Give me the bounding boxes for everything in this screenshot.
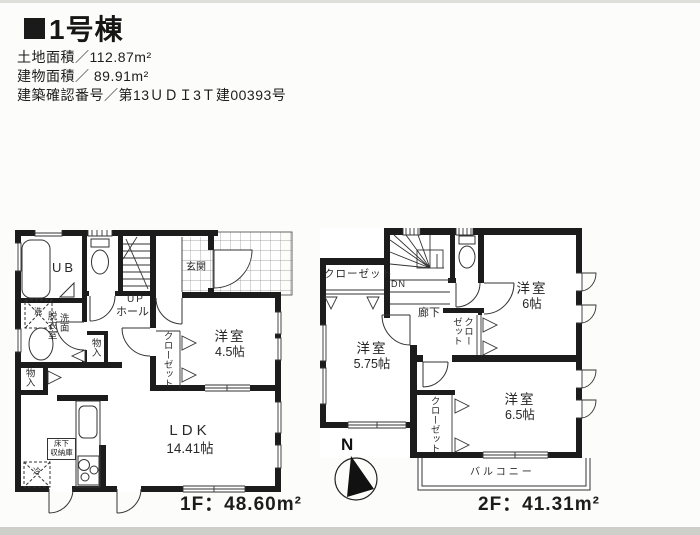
floorplan-page: 1号棟 土地面積／112.87m² 建物面積／ 89.91m² 建築確認番号／第…: [0, 0, 700, 535]
room-label-corridor: 廊下: [418, 307, 440, 319]
storage-label-hall: 物入: [89, 338, 100, 362]
closet-label-2f-north: クローゼット: [324, 269, 393, 281]
room-label-western-6: 洋室: [510, 281, 554, 296]
closet-label-1f: クローゼット: [161, 331, 172, 395]
room-label-ub: UB: [48, 261, 80, 276]
balcony-label: バルコニー: [470, 467, 535, 478]
room-label-western-575: 洋室: [348, 341, 396, 356]
room-size-western-45: 4.5帖: [205, 345, 255, 359]
compass-icon: [335, 456, 377, 500]
building-title: 1号棟: [49, 8, 124, 48]
room-label-western-45: 洋室: [205, 329, 255, 344]
stairs-up-label: UP: [127, 294, 145, 305]
room-size-western-6: 6帖: [510, 297, 554, 311]
floor2-area-label: 2F：41.31m²: [478, 494, 600, 515]
closet-label-2f-south: クローゼット: [428, 396, 439, 460]
compass-n-label: N: [341, 435, 353, 454]
room-label-hall: ホール: [116, 306, 149, 318]
underfloor-line1: 床下: [54, 439, 69, 448]
room-size-western-65: 6.5帖: [494, 408, 546, 422]
room-label-ldk: LDK: [160, 423, 220, 440]
underfloor-line2: 収納庫: [50, 448, 73, 457]
floor1-area-label: 1F：48.60m²: [180, 494, 302, 515]
land-area: 土地面積／112.87m²: [17, 50, 152, 66]
underfloor-storage-label: 床下 収納庫: [47, 438, 76, 460]
room-label-washroom-1: 洗面: [57, 313, 68, 337]
storage-label-ldk: 物入: [23, 368, 34, 392]
room-size-ldk: 14.41帖: [155, 441, 225, 456]
confirmation-number: 建築確認番号／第13ＵＤＩ3Ｔ建00393号: [17, 88, 286, 104]
washer-mark: 洗: [34, 308, 42, 317]
stairs-down-label: DN: [391, 279, 406, 289]
building-area: 建物面積／ 89.91m²: [17, 69, 149, 85]
fridge-mark: 冷: [33, 468, 41, 477]
room-label-entrance: 玄関: [186, 262, 206, 273]
room-label-washroom-2: 脱衣室: [45, 311, 56, 347]
room-label-western-65: 洋室: [496, 392, 544, 407]
room-size-western-575: 5.75帖: [344, 357, 400, 371]
page-title: 1号棟: [24, 8, 124, 48]
title-square-icon: [24, 18, 45, 39]
closet-label-2f-mid: クローゼット: [451, 317, 473, 351]
